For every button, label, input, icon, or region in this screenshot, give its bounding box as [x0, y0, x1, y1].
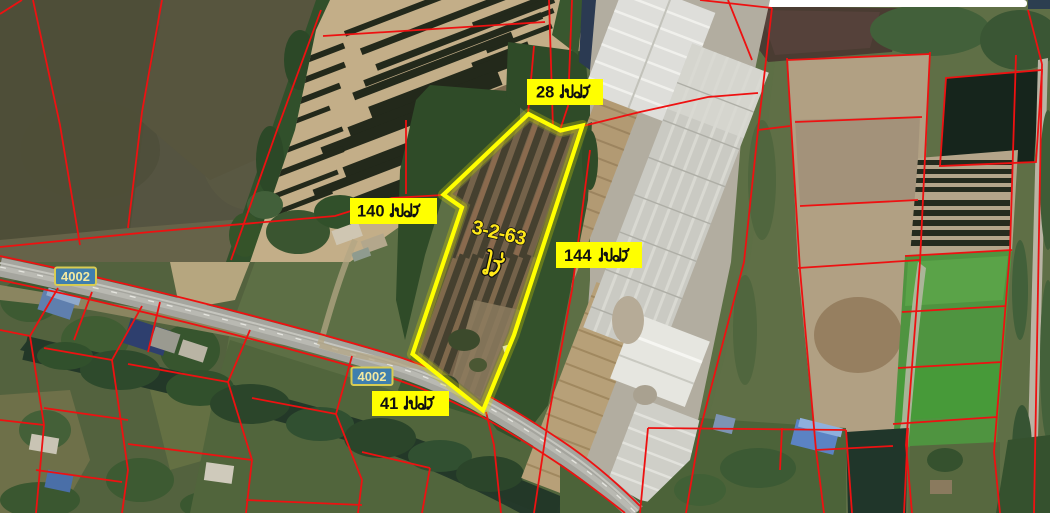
svg-text:144: 144 — [564, 247, 592, 265]
svg-text:4002: 4002 — [61, 269, 90, 284]
svg-text:140: 140 — [357, 203, 385, 221]
svg-text:41: 41 — [380, 395, 398, 413]
svg-text:28: 28 — [536, 84, 554, 102]
svg-text:4002: 4002 — [358, 369, 387, 384]
